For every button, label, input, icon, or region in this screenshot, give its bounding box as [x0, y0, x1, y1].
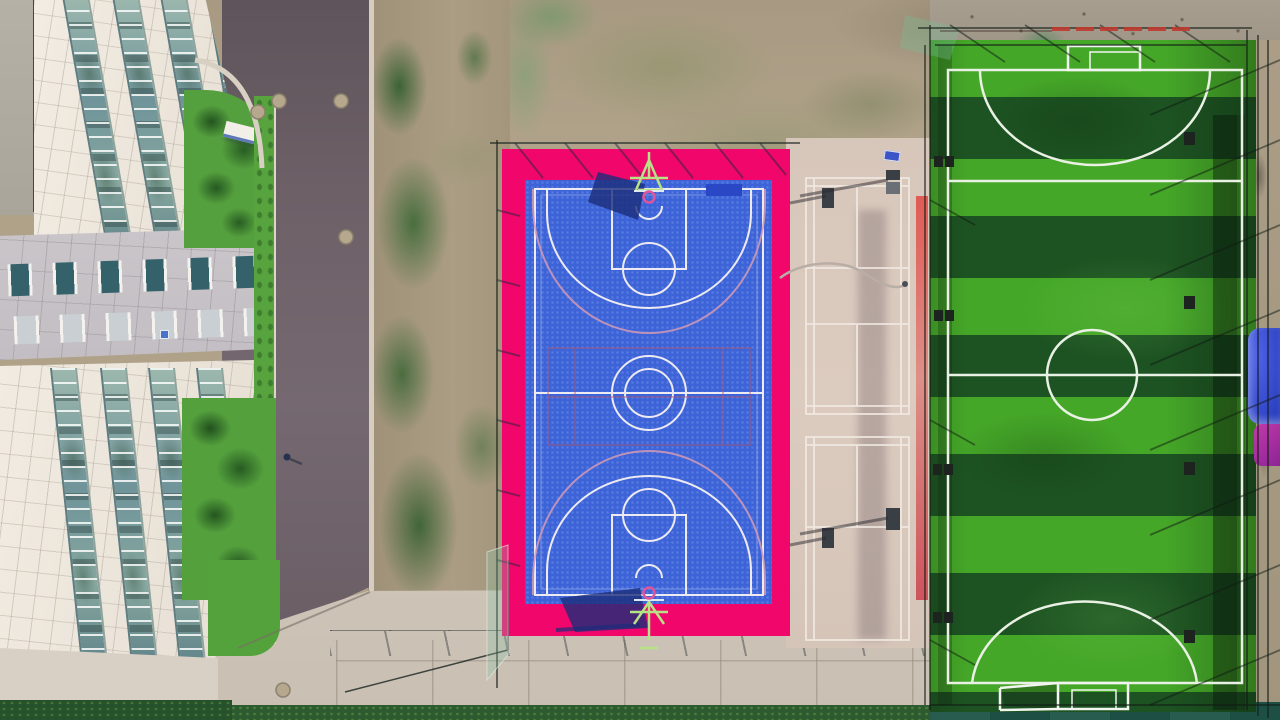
badminton-posts-and-shadows	[780, 170, 908, 548]
basketball-hoop-top	[588, 152, 668, 220]
basketball-hoop-bottom	[556, 588, 668, 649]
soccer-field-lines	[948, 70, 1242, 683]
basketball-court-lines	[535, 189, 763, 595]
garden-hose	[780, 263, 905, 287]
soccer-goal-top	[1068, 46, 1140, 70]
soccer-goal-bottom	[1000, 683, 1128, 710]
badminton-court-lines	[806, 178, 909, 640]
road-curb-curve	[195, 60, 370, 648]
aerial-photo-scene	[0, 0, 1280, 720]
basketball-overlay-lines	[533, 184, 765, 595]
fence-glass-corner	[487, 545, 508, 680]
line-markings-overlay	[0, 0, 1280, 720]
red-painted-line	[940, 29, 1195, 31]
pedestrian-with-bicycle	[284, 454, 303, 465]
field-light-fixtures	[933, 132, 1195, 643]
